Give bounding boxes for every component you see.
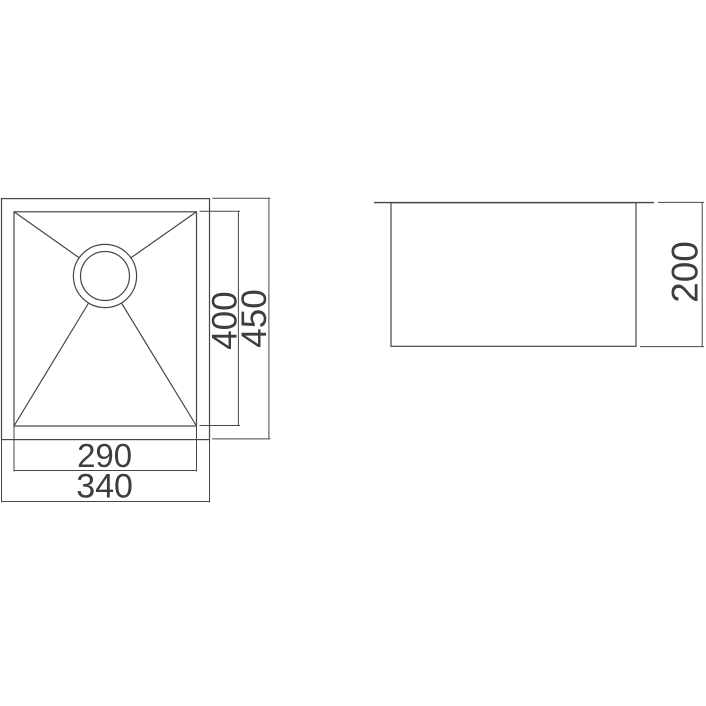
svg-text:450: 450	[235, 289, 274, 347]
svg-text:200: 200	[664, 241, 705, 303]
svg-text:340: 340	[76, 467, 133, 505]
